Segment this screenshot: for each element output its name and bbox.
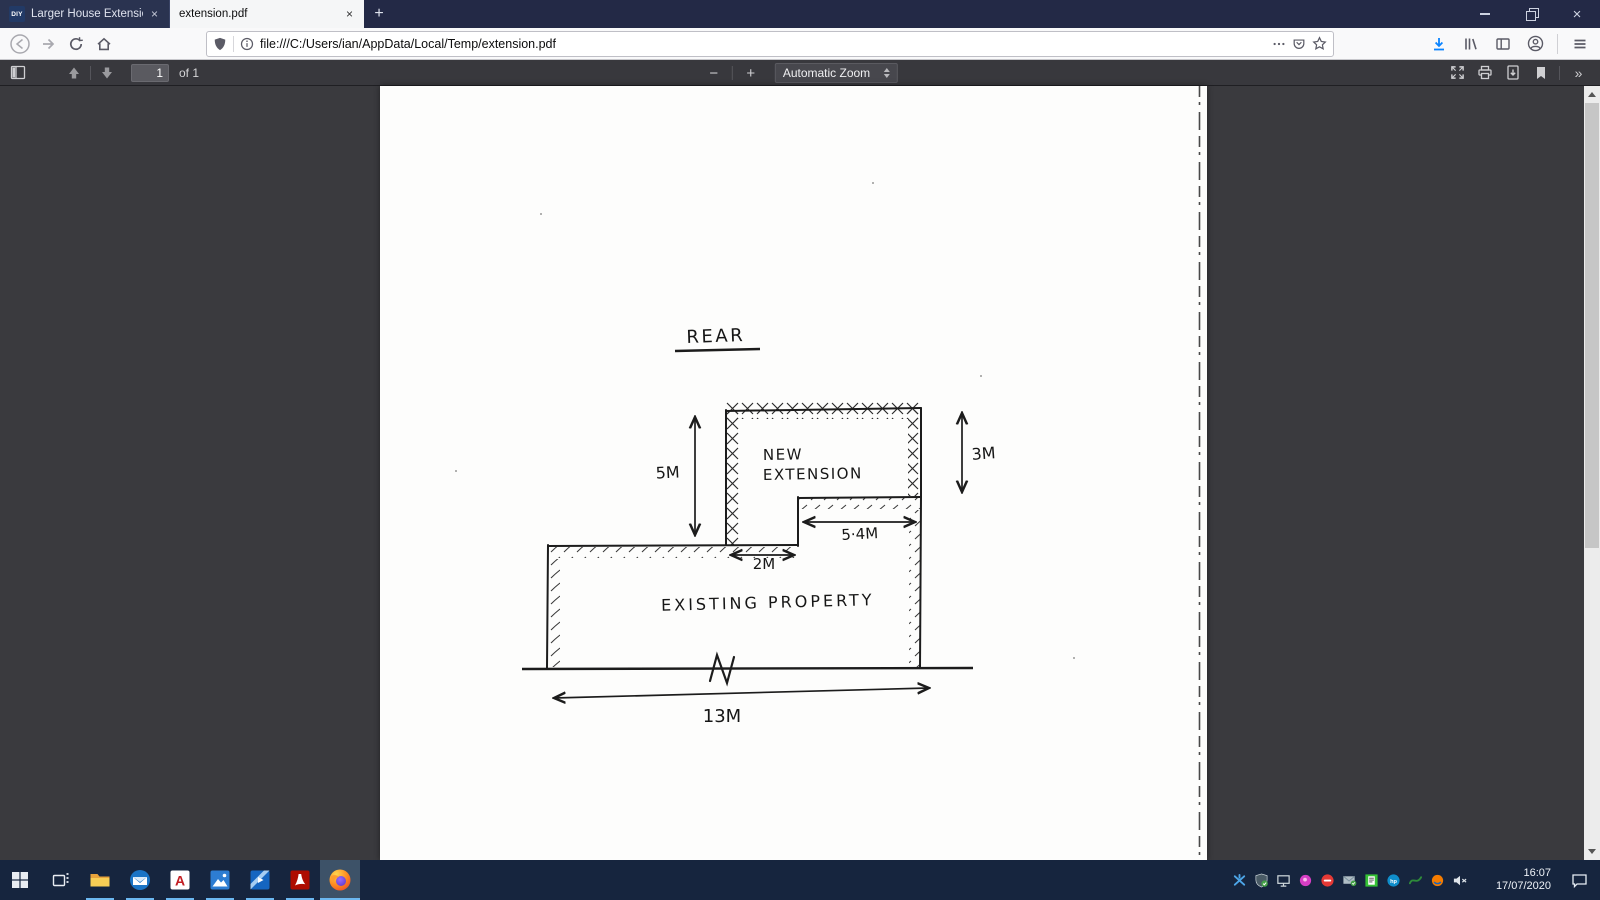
scroll-down-icon (1588, 849, 1596, 854)
system-tray: hp 16:07 17/07/2020 (1231, 860, 1600, 900)
print-queue-tray-icon[interactable] (1363, 872, 1380, 889)
action-center-button[interactable] (1564, 860, 1594, 900)
network-display-tray-icon[interactable] (1275, 872, 1292, 889)
tab-title: Larger House Extension Applica (31, 8, 143, 20)
taskbar-autocad[interactable]: A (160, 860, 200, 900)
thunderbird-icon (128, 868, 152, 892)
pdf-page: REAR (380, 86, 1207, 860)
firefox-icon (327, 867, 353, 893)
page-number-input[interactable]: 1 (131, 64, 169, 82)
new-tab-button[interactable]: + (364, 0, 394, 28)
sketch-title: REAR (686, 325, 745, 348)
clock-time: 16:07 (1483, 867, 1551, 880)
zoom-level-value: Automatic Zoom (783, 66, 870, 80)
vertical-scrollbar[interactable] (1584, 86, 1600, 860)
fullscreen-icon (1450, 65, 1465, 80)
sidebars-button[interactable] (1489, 30, 1517, 58)
bookmark-star-icon[interactable] (1312, 36, 1327, 51)
new-extension-label-line1: NEW (763, 445, 803, 464)
toolbar-divider (90, 66, 91, 80)
downloads-button[interactable] (1425, 30, 1453, 58)
taskbar-movies-tv[interactable] (240, 860, 280, 900)
hamburger-icon (1572, 36, 1588, 52)
scroll-up-icon (1588, 92, 1596, 97)
photos-icon (208, 868, 232, 892)
back-button[interactable] (6, 30, 34, 58)
forward-icon (40, 36, 56, 52)
reload-icon (68, 36, 84, 52)
task-view-button[interactable] (40, 860, 80, 900)
diy-favicon: DIY (9, 6, 25, 22)
forward-button[interactable] (34, 30, 62, 58)
bookmark-icon (1535, 66, 1547, 80)
antivirus-tray-icon[interactable] (1319, 872, 1336, 889)
taskbar-clock[interactable]: 16:07 17/07/2020 (1483, 867, 1551, 893)
sidebar-toggle-icon (10, 65, 26, 80)
zoom-level-select[interactable]: Automatic Zoom (775, 63, 898, 83)
presentation-mode-button[interactable] (1445, 62, 1469, 84)
dim-3m-label: 3M (971, 443, 996, 464)
pocket-icon[interactable] (1292, 37, 1306, 51)
dim-13m-label: 13M (703, 706, 741, 727)
navbar-separator (1557, 34, 1558, 54)
minimize-button[interactable] (1462, 0, 1508, 28)
ground-line (522, 668, 973, 669)
green-swoosh-tray-icon[interactable] (1407, 872, 1424, 889)
close-button[interactable]: × (1554, 0, 1600, 28)
account-button[interactable] (1521, 30, 1549, 58)
taskbar: A (0, 860, 1600, 900)
next-page-button[interactable] (95, 62, 119, 84)
scroll-down-button[interactable] (1584, 843, 1600, 860)
autocad-icon: A (168, 868, 192, 892)
taskbar-photos[interactable] (200, 860, 240, 900)
pdf-viewport: REAR (0, 86, 1600, 860)
more-tools-button[interactable]: » (1566, 62, 1590, 84)
page-count-label: of 1 (179, 66, 199, 80)
toolbar-divider (1559, 66, 1560, 80)
autocad-letter: A (175, 873, 185, 889)
taskbar-file-explorer[interactable] (80, 860, 120, 900)
tab-close-icon[interactable]: × (149, 6, 160, 22)
title-underline (675, 349, 760, 351)
task-view-icon (50, 870, 70, 890)
print-button[interactable] (1473, 62, 1497, 84)
urlbar-divider (233, 36, 234, 52)
pink-app-tray-icon[interactable] (1297, 872, 1314, 889)
zoom-out-button[interactable]: − (702, 62, 726, 84)
minimize-icon (1480, 13, 1490, 15)
orange-app-tray-icon[interactable] (1429, 872, 1446, 889)
tab-title: extension.pdf (179, 8, 338, 20)
new-extension-label-line2: EXTENSION (763, 464, 863, 484)
home-icon (96, 36, 112, 52)
sidebar-icon (1495, 36, 1511, 52)
page-actions-icon[interactable] (1272, 37, 1286, 51)
window-controls: × (1462, 0, 1600, 28)
taskbar-firefox[interactable] (320, 860, 360, 900)
acrobat-icon (288, 868, 312, 892)
page-down-icon (100, 66, 114, 80)
volume-muted-tray-icon[interactable] (1451, 872, 1468, 889)
library-icon (1463, 36, 1479, 52)
clock-date: 17/07/2020 (1483, 880, 1551, 893)
scrollbar-thumb[interactable] (1585, 103, 1599, 548)
pdf-toolbar-center: − + Automatic Zoom (702, 60, 898, 86)
page-up-icon (67, 66, 81, 80)
pdf-toolbar-right: » (1445, 62, 1600, 84)
reload-button[interactable] (62, 30, 90, 58)
download-icon (1431, 36, 1447, 52)
pdf-toolbar-left: 1 of 1 (0, 62, 199, 84)
action-center-icon (1571, 872, 1588, 889)
toolbar-divider (732, 66, 733, 80)
navigation-toolbar: file:///C:/Users/ian/AppData/Local/Temp/… (0, 28, 1600, 60)
menu-button[interactable] (1566, 30, 1594, 58)
back-icon (9, 33, 31, 55)
taskbar-thunderbird[interactable] (120, 860, 160, 900)
navbar-right-buttons (1425, 30, 1594, 58)
tab-larger-house-extension[interactable]: DIY Larger House Extension Applica × (0, 0, 170, 28)
restore-button[interactable] (1508, 0, 1554, 28)
start-button[interactable] (0, 860, 40, 900)
save-pdf-button[interactable] (1501, 62, 1525, 84)
dim-2m-label: 2M (753, 555, 776, 573)
file-explorer-icon (88, 868, 112, 892)
select-arrows-icon (884, 68, 890, 78)
page-info-icon[interactable] (240, 37, 254, 51)
windows-logo-icon (11, 871, 29, 889)
url-bar[interactable]: file:///C:/Users/ian/AppData/Local/Temp/… (206, 31, 1334, 57)
close-icon: × (1573, 7, 1582, 22)
tab-close-icon[interactable]: × (344, 6, 355, 22)
tab-extension-pdf[interactable]: extension.pdf × (170, 0, 364, 28)
hp-label: hp (1390, 878, 1397, 884)
pdf-sidebar-toggle-button[interactable] (6, 62, 30, 84)
dim-5-4m-label: 5·4M (841, 524, 879, 544)
double-chevron-icon: » (1575, 65, 1582, 81)
hp-tray-icon[interactable]: hp (1385, 872, 1402, 889)
movies-tv-icon (248, 868, 272, 892)
titlebar: DIY Larger House Extension Applica × ext… (0, 0, 1600, 28)
document-download-icon (1506, 65, 1520, 80)
print-icon (1477, 65, 1493, 80)
break-mark-stroke (710, 655, 734, 683)
library-button[interactable] (1457, 30, 1485, 58)
sketch-svg: REAR (380, 86, 1207, 860)
defender-shield-tray-icon[interactable] (1253, 872, 1270, 889)
tracking-shield-icon[interactable] (213, 37, 227, 51)
restore-icon (1527, 10, 1536, 19)
pdf-toolbar: 1 of 1 − + Automatic Zoom » (0, 60, 1600, 86)
mail-check-tray-icon[interactable] (1341, 872, 1358, 889)
dim-5m-label: 5M (655, 462, 680, 482)
previous-page-button[interactable] (62, 62, 86, 84)
zoom-in-button[interactable]: + (739, 62, 763, 84)
current-view-bookmark-button[interactable] (1529, 62, 1553, 84)
url-text: file:///C:/Users/ian/AppData/Local/Temp/… (260, 37, 1266, 51)
account-icon (1527, 35, 1544, 52)
remote-access-tray-icon[interactable] (1231, 872, 1248, 889)
existing-property-label: EXISTING PROPERTY (661, 590, 875, 615)
home-button[interactable] (90, 30, 118, 58)
scroll-up-button[interactable] (1584, 86, 1600, 103)
taskbar-acrobat-reader[interactable] (280, 860, 320, 900)
